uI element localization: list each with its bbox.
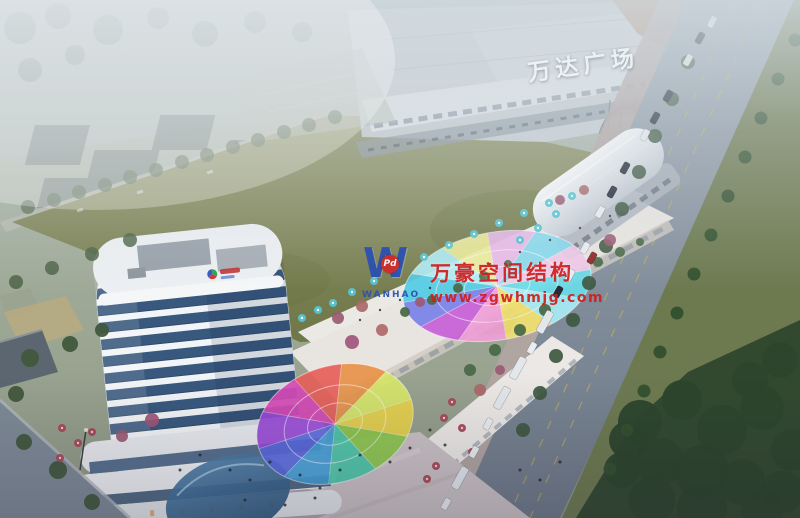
watermark-company-name: 万豪空间结构 — [430, 256, 604, 288]
watermark-text: 万豪空间结构 www.zgwhmjg.com — [430, 250, 604, 306]
watermark-logo: W Pd WANHAO — [362, 250, 420, 304]
watermark-website: www.zgwhmjg.com — [430, 290, 604, 306]
watermark: W Pd WANHAO 万豪空间结构 www.zgwhmjg.com — [362, 250, 604, 306]
aerial-rendering: 万达广场 W Pd WANHAO 万豪空间结构 www.zgwhmjg.com — [0, 0, 800, 518]
logo-red-badge: Pd — [381, 255, 399, 273]
logo-wordmark: WANHAO — [362, 290, 420, 300]
